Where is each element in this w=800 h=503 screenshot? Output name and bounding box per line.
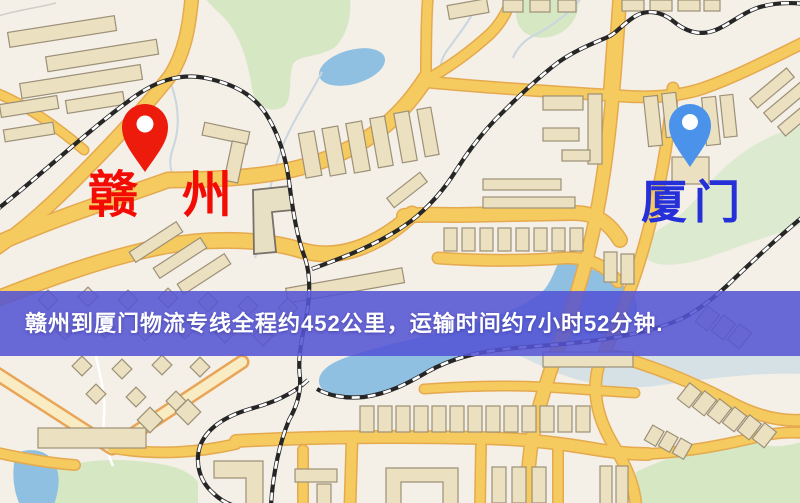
xiamen-label: 厦门 — [641, 179, 747, 225]
map-graphics — [0, 0, 800, 503]
ganzhou-label: 赣州 — [88, 170, 276, 220]
ganzhou-pin-icon — [122, 104, 168, 172]
route-info-banner: 赣州到厦门物流专线全程约452公里，运输时间约7小时52分钟. — [0, 291, 800, 356]
map-canvas: 赣州 厦门 赣州到厦门物流专线全程约452公里，运输时间约7小时52分钟. — [0, 0, 800, 503]
route-info-text: 赣州到厦门物流专线全程约452公里，运输时间约7小时52分钟. — [25, 311, 664, 336]
